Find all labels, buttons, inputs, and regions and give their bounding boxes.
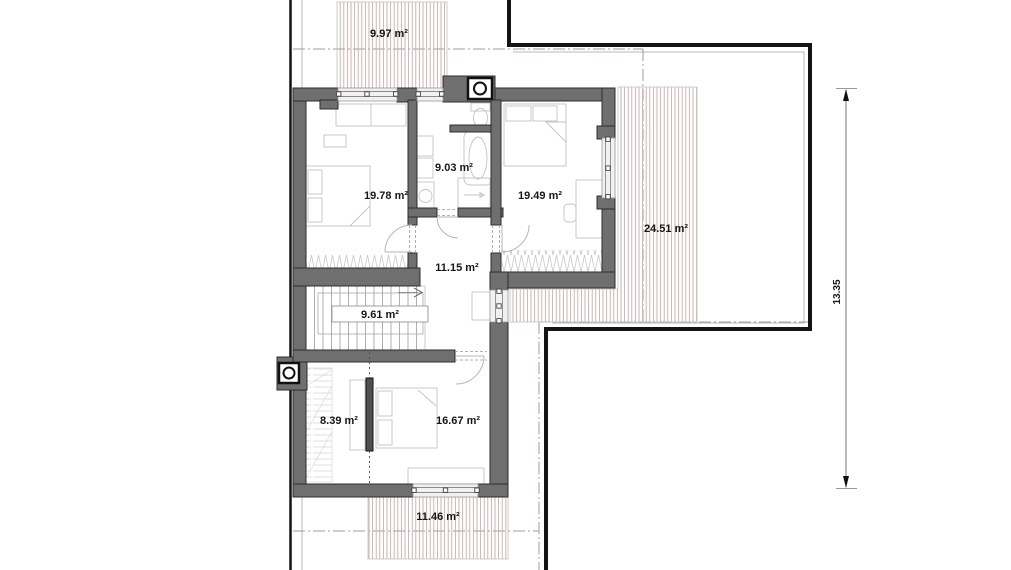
wall-pier xyxy=(320,100,338,109)
wall-closet-partition xyxy=(366,378,373,451)
door-swing-arc xyxy=(385,225,412,252)
label-terrace-bottom: 11.46 m² xyxy=(416,511,460,523)
wall-bath-south-a xyxy=(408,208,437,217)
toilet-tank xyxy=(471,103,490,111)
door-bedroom-bottom xyxy=(455,352,487,385)
wall-stairs-north xyxy=(293,268,420,286)
window-marker xyxy=(497,289,501,293)
label-terrace-right: 24.51 m² xyxy=(644,223,688,235)
label-closet: 8.39 m² xyxy=(320,415,358,427)
window-marker xyxy=(606,137,610,141)
label-hallway: 11.15 m² xyxy=(435,262,479,274)
blanket-fold xyxy=(350,206,370,226)
door-bedroom-left xyxy=(385,225,416,253)
pillow xyxy=(506,106,531,121)
label-bedroom-left: 19.78 m² xyxy=(364,190,408,202)
chimney-icon-top xyxy=(468,78,492,99)
window-marker xyxy=(416,92,420,96)
label-bedroom-bottom: 16.67 m² xyxy=(436,415,480,427)
window-marker xyxy=(497,319,501,323)
wall-top-c xyxy=(495,88,615,101)
pillow xyxy=(378,391,392,416)
door-bathroom xyxy=(437,210,458,239)
wall-west xyxy=(293,88,306,497)
label-terrace-top: 9.97 m² xyxy=(370,28,408,40)
window-marker xyxy=(443,488,447,492)
window-marker xyxy=(337,92,341,96)
window-marker xyxy=(412,488,416,492)
window-south xyxy=(412,484,479,497)
label-bedroom-right: 19.49 m² xyxy=(518,190,562,202)
floor-plan-drawing: 13.35 9.97 m² 19.78 m² 9.03 m² 19.49 m² … xyxy=(0,0,1011,570)
bed-bottom xyxy=(376,388,437,448)
washbasin xyxy=(419,190,432,203)
dimension-value: 13.35 xyxy=(832,279,843,304)
blanket-fold xyxy=(418,390,436,406)
terrace-top-area xyxy=(337,2,447,88)
window-marker xyxy=(606,166,610,170)
window-top-bath xyxy=(416,88,444,101)
tv-stand xyxy=(324,135,346,147)
chimney-icon-left xyxy=(279,363,299,383)
window-marker xyxy=(365,92,369,96)
chimney-flue xyxy=(284,368,295,379)
door-bedroom-right xyxy=(493,225,530,253)
bath-cabinet xyxy=(417,158,433,178)
knee-strip-bedroom-right xyxy=(502,250,602,272)
window-marker xyxy=(497,304,501,308)
window-recess-south xyxy=(408,468,484,484)
wall-stairs-south xyxy=(293,350,455,362)
bed-left xyxy=(306,166,370,226)
pillow xyxy=(378,420,392,445)
label-bathroom: 9.03 m² xyxy=(435,162,473,174)
door-swing-arc xyxy=(502,225,529,252)
pillow xyxy=(533,106,557,121)
window-marker xyxy=(394,92,398,96)
window-marker xyxy=(475,488,479,492)
chimney-flue xyxy=(474,83,486,95)
window-hall-terrace xyxy=(490,289,508,323)
wall-bedroomleft-hall-a xyxy=(408,100,417,225)
wall-south-bedroom-right xyxy=(495,272,615,288)
chair xyxy=(564,204,576,222)
wall-top-a xyxy=(293,88,338,101)
wall-south-a xyxy=(293,484,413,497)
dimension-arrow-top xyxy=(843,89,849,101)
wall-south-b xyxy=(478,484,508,497)
pillow xyxy=(308,198,322,222)
dimension-arrow-bottom xyxy=(843,476,849,488)
window-top-left xyxy=(337,88,398,101)
window-recess-hall xyxy=(472,292,490,320)
wall-east-upper-b xyxy=(602,197,615,281)
pillow xyxy=(308,170,322,194)
washbasin-counter xyxy=(417,182,434,210)
dimension-right: 13.35 xyxy=(832,89,857,489)
wall-bath-east-b xyxy=(491,253,501,272)
floor-plan-page: 13.35 9.97 m² 19.78 m² 9.03 m² 19.49 m² … xyxy=(0,0,1011,570)
wall-bath-east-a xyxy=(491,100,501,225)
wall-east-lower-a xyxy=(490,272,508,290)
window-east-bedroom-right xyxy=(602,137,615,199)
bath-cabinet xyxy=(417,136,433,156)
shower xyxy=(458,178,490,208)
window-marker xyxy=(606,195,610,199)
label-staircase: 9.61 m² xyxy=(361,309,399,321)
bathtub xyxy=(464,131,492,185)
terrace-bottom-area xyxy=(368,497,508,559)
window-marker xyxy=(440,92,444,96)
door-swing-arc xyxy=(437,217,458,238)
wall-toilet-stub xyxy=(450,125,491,132)
wall-east-lower-b xyxy=(490,322,508,497)
blanket-fold xyxy=(546,122,566,142)
